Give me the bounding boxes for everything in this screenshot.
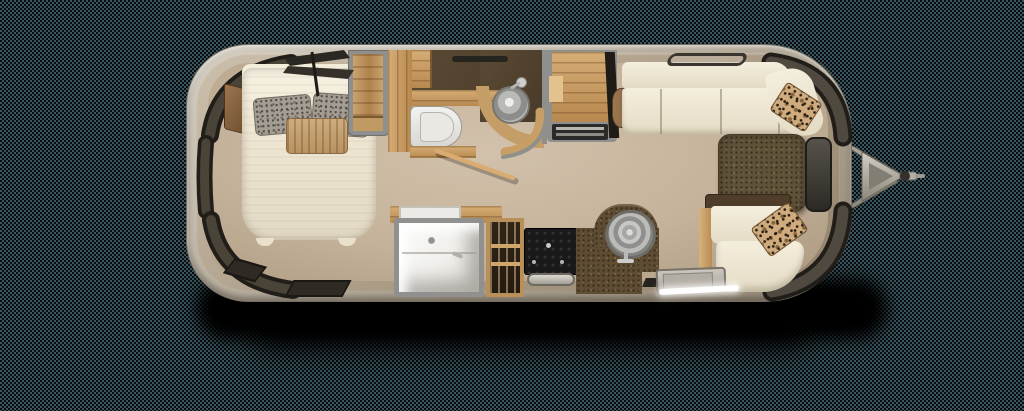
- overlay-details: [0, 0, 1024, 411]
- roof-fan-blade: [284, 50, 350, 66]
- floorplan-stage: [0, 0, 1024, 411]
- roof-fan-blade: [283, 66, 354, 79]
- bathroom-door: [437, 151, 513, 178]
